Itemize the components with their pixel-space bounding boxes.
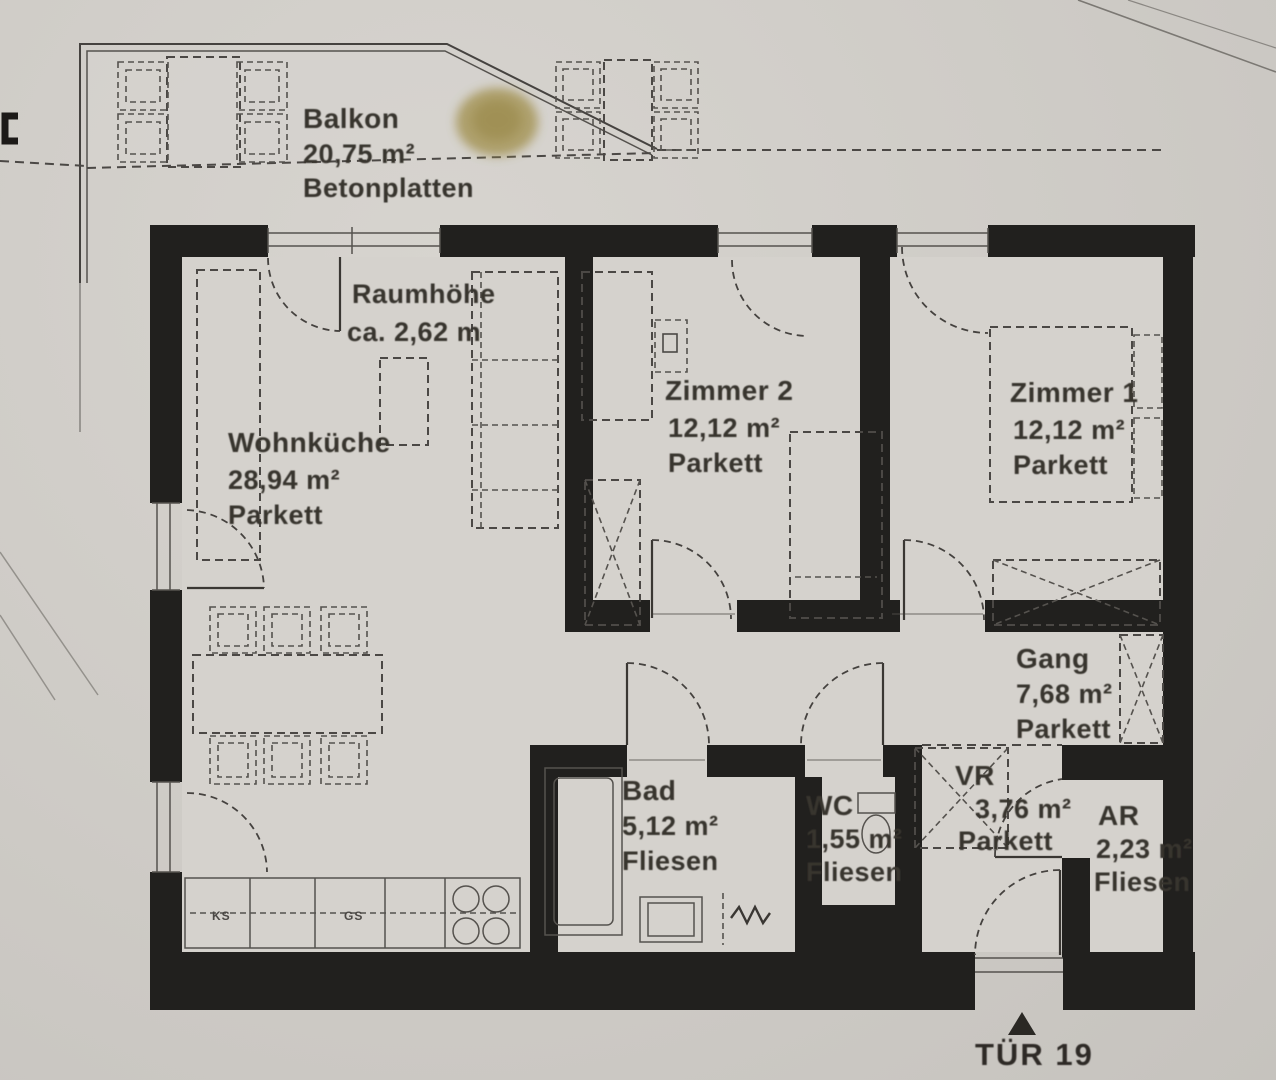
room-name: Wohnküche bbox=[228, 427, 391, 458]
room-name: Zimmer 1 bbox=[1010, 377, 1139, 408]
floor-plan-svg: KS GS bbox=[0, 0, 1276, 1080]
room-name: Bad bbox=[622, 775, 676, 806]
window-zimmer1 bbox=[897, 228, 988, 253]
room-floor: Parkett bbox=[668, 448, 763, 478]
balcony-chair-inner bbox=[661, 69, 691, 100]
door-opening-left-lower bbox=[152, 782, 180, 872]
entrance-marker: TÜR 19 bbox=[975, 1012, 1094, 1072]
room-area: 12,12 m² bbox=[1013, 415, 1125, 445]
scanned-floor-plan: KS GS bbox=[0, 0, 1276, 1080]
paper-edge-line bbox=[1078, 0, 1276, 72]
kitchen-label-ks: KS bbox=[212, 909, 231, 923]
balcony-name: Balkon bbox=[303, 103, 399, 134]
coffee-stain bbox=[456, 88, 538, 156]
room-name: Gang bbox=[1016, 643, 1090, 674]
entrance-label: TÜR 19 bbox=[975, 1037, 1094, 1072]
room-floor: Parkett bbox=[228, 500, 323, 530]
ceiling-note-line2: ca. 2,62 m bbox=[347, 317, 481, 347]
balcony-bottom-dashed-left bbox=[0, 161, 87, 166]
ceiling-note-line1: Raumhöhe bbox=[352, 279, 496, 309]
kitchen-label-gs: GS bbox=[344, 909, 363, 923]
room-floor: Fliesen bbox=[806, 857, 903, 887]
room-floor: Fliesen bbox=[622, 846, 719, 876]
room-area: 12,12 m² bbox=[668, 413, 780, 443]
room-floor: Parkett bbox=[1013, 450, 1108, 480]
room-area: 28,94 m² bbox=[228, 465, 340, 495]
room-floor: Parkett bbox=[958, 826, 1053, 856]
room-floor: Fliesen bbox=[1094, 867, 1191, 897]
balcony-area: 20,75 m² bbox=[303, 139, 415, 169]
balcony-door-opening-left bbox=[152, 503, 180, 590]
balcony-floor: Betonplatten bbox=[303, 173, 474, 203]
scan-mark bbox=[5, 116, 18, 141]
paper-crease bbox=[0, 552, 98, 695]
room-area: 5,12 m² bbox=[622, 811, 719, 841]
window-wohnkueche bbox=[268, 227, 440, 254]
room-name: VR bbox=[955, 760, 995, 791]
room-area: 1,55 m² bbox=[806, 824, 903, 854]
paper-edge-line bbox=[1128, 0, 1276, 48]
room-name: Zimmer 2 bbox=[665, 375, 794, 406]
balcony-chair-inner bbox=[661, 119, 691, 150]
window-zimmer2 bbox=[718, 228, 812, 253]
entrance-triangle-icon bbox=[1008, 1012, 1036, 1035]
paper-crease bbox=[0, 615, 55, 700]
room-area: 2,23 m² bbox=[1096, 834, 1193, 864]
room-floor: Parkett bbox=[1016, 714, 1111, 744]
room-name: WC bbox=[806, 790, 854, 821]
room-area: 7,68 m² bbox=[1016, 679, 1113, 709]
room-name: AR bbox=[1098, 800, 1139, 831]
balcony-chair-inner bbox=[563, 69, 593, 100]
room-area: 3,76 m² bbox=[975, 794, 1072, 824]
entrance-threshold bbox=[975, 958, 1063, 972]
